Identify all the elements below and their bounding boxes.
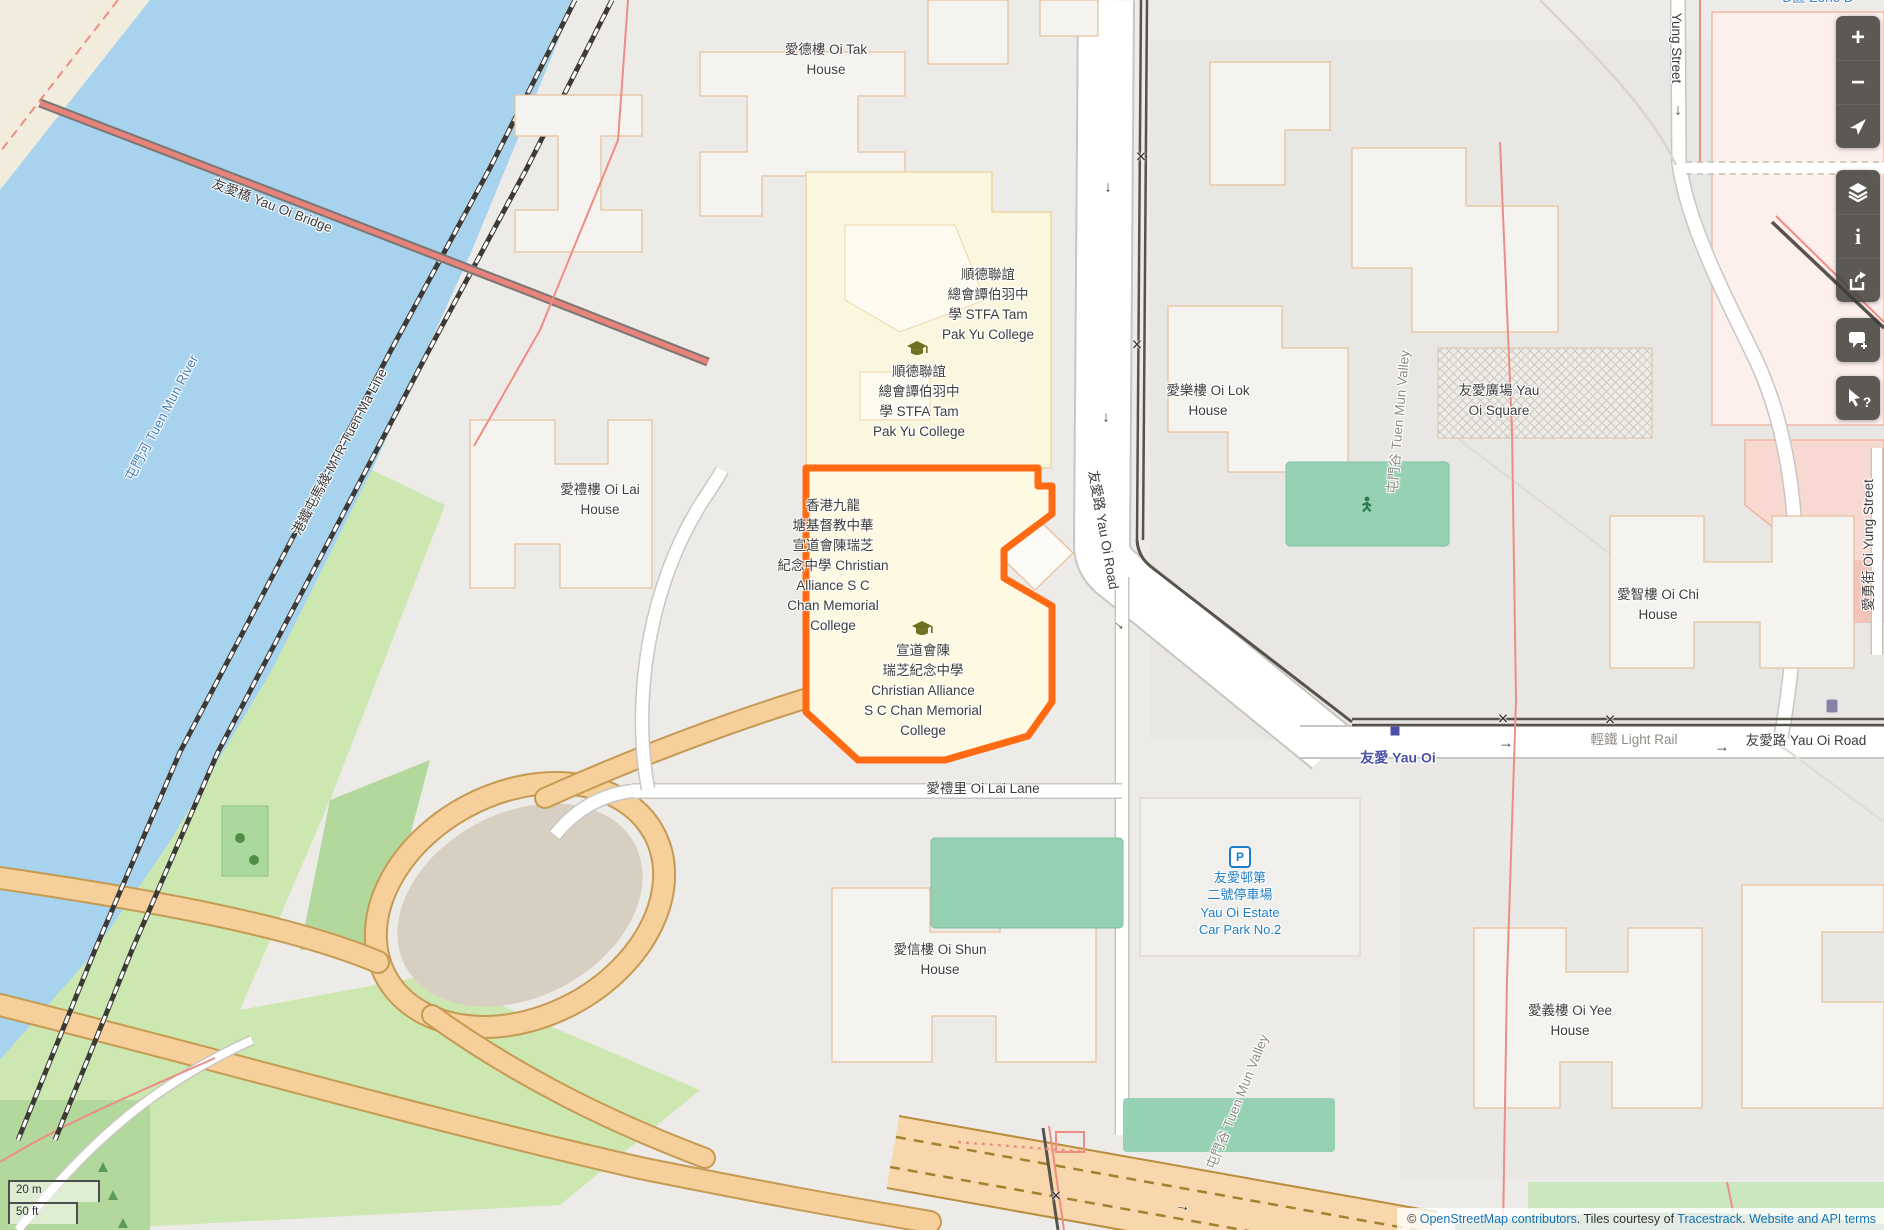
label-oi-lai-lane: 愛禮里 Oi Lai Lane [926,779,1039,799]
minus-icon: − [1851,69,1865,97]
layers-button[interactable] [1836,170,1880,214]
scale-metric: 20 m [8,1180,100,1202]
rail-crossing-icon: × [1132,335,1143,356]
rail-crossing-icon: × [1136,147,1147,168]
zoom-control-group: + − [1836,16,1880,148]
label-oi-yee-house: 愛義樓 Oi Yee House [1528,1001,1612,1041]
layers-control-group: i [1836,170,1880,302]
add-note-button[interactable] [1836,318,1880,362]
zoom-in-button[interactable]: + [1836,16,1880,60]
map-canvas[interactable]: 愛德樓 Oi Tak House 順德聯誼 總會譚伯羽中 學 STFA Tam … [0,0,1884,1230]
question-icon: ? [1863,394,1872,410]
locate-button[interactable] [1836,104,1880,148]
info-icon: i [1855,224,1861,250]
bus-stop-icon [1827,700,1838,713]
query-features-button[interactable]: ? [1836,376,1880,420]
label-oi-shun-house: 愛信樓 Oi Shun House [893,940,986,980]
label-oi-lai-house: 愛禮樓 Oi Lai House [560,480,640,520]
locate-icon [1848,117,1868,137]
school-icon [905,340,929,358]
oneway-arrow: → [1715,739,1730,756]
oneway-arrow: ↓ [1674,102,1682,119]
label-oi-chi-house: 愛智樓 Oi Chi House [1617,585,1699,625]
osm-contributors-link[interactable]: OpenStreetMap contributors [1420,1212,1577,1226]
terms-link[interactable]: Website and API terms [1749,1212,1876,1226]
pitch-center [931,838,1123,928]
rail-crossing-icon: × [1051,1186,1062,1207]
info-button[interactable]: i [1836,214,1880,258]
share-button[interactable] [1836,258,1880,302]
share-icon [1847,270,1869,292]
plus-icon: + [1851,24,1865,52]
label-stfa-college: 順德聯誼 總會譚伯羽中 學 STFA Tam Pak Yu College [873,362,965,442]
label-christian-alliance-long: 香港九龍 塘基督教中華 宣道會陳瑞芝 紀念中學 Christian Allian… [777,496,888,636]
tracestrack-link[interactable]: Tracestrack [1677,1212,1742,1226]
oneway-arrow: → [1499,735,1514,752]
rail-crossing-icon: × [1605,710,1616,731]
attribution-bar: © OpenStreetMap contributors. Tiles cour… [1397,1208,1884,1230]
oneway-arrow: ↓ [1104,179,1112,196]
label-car-park: 友愛邨第 二號停車場 Yau Oi Estate Car Park No.2 [1199,869,1281,939]
oneway-arrow: → [1174,1196,1192,1215]
label-yau-oi-station: 友愛 Yau Oi [1360,748,1435,769]
attribution-copyright: © [1407,1212,1420,1226]
layers-icon [1847,181,1869,203]
tree-icon [235,833,245,843]
note-control-group [1836,318,1880,362]
scale-control: 20 m 50 ft [8,1180,100,1224]
attribution-courtesy: . Tiles courtesy of [1577,1212,1678,1226]
label-yau-oi-square: 友愛廣場 Yau Oi Square [1459,381,1540,421]
query-control-group: ? [1836,376,1880,420]
playground-area [222,806,268,876]
label-christian-alliance-college: 宣道會陳 瑞芝紀念中學 Christian Alliance S C Chan … [864,641,982,741]
zoom-out-button[interactable]: − [1836,60,1880,104]
school-icon [910,620,934,638]
label-zone-d: D區 Zone D [1782,0,1853,8]
parking-icon: P [1229,846,1251,868]
tree-icon [249,855,259,865]
light-rail-station-marker [1391,727,1400,736]
label-yau-oi-road: 友愛路 Yau Oi Road [1746,731,1867,751]
oneway-arrow: ↓ [1102,409,1110,426]
label-oi-lok-house: 愛樂樓 Oi Lok House [1166,381,1249,421]
rail-crossing-icon: × [1498,709,1509,730]
label-stfa-college-upper: 順德聯誼 總會譚伯羽中 學 STFA Tam Pak Yu College [942,265,1034,345]
label-light-rail: 輕鐵 Light Rail [1590,730,1677,750]
scale-imperial: 50 ft [8,1202,78,1224]
label-oi-tak-house: 愛德樓 Oi Tak House [785,40,867,80]
label-yung-street: Yung Street [1666,13,1686,84]
cursor-icon [1845,388,1865,408]
map-tiles [0,0,1884,1230]
label-oi-yung-street: 愛勇街 Oi Yung Street [1859,479,1879,611]
comment-plus-icon [1847,329,1869,351]
